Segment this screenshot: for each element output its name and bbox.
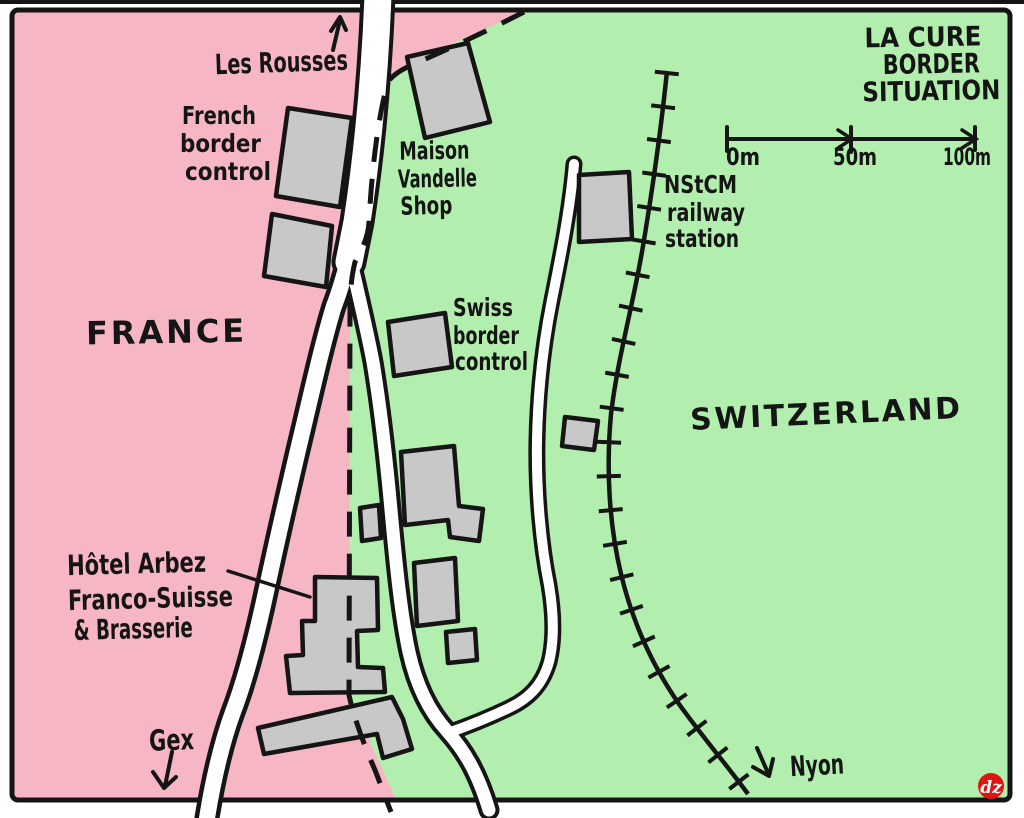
railway-tick xyxy=(599,509,623,511)
nstcm-line-2: railway xyxy=(667,198,745,227)
building-cluster-medium xyxy=(414,558,458,626)
swiss-border-line-1: Swiss xyxy=(453,293,513,322)
french-border-line-1: French xyxy=(182,101,256,130)
label-nyon: Nyon xyxy=(789,748,845,784)
map-canvas: 0m 50m 100m LA CURE BORDER SITUATION Les… xyxy=(0,0,1024,818)
swiss-border-line-2: border xyxy=(453,321,519,350)
nstcm-line-1: NStCM xyxy=(664,170,737,199)
building-railway-station xyxy=(579,172,632,242)
building-swiss-control xyxy=(388,313,452,376)
map-title: LA CURE BORDER SITUATION xyxy=(861,21,1000,108)
scale-label-50m: 50m xyxy=(833,143,877,171)
maison-line-1: Maison xyxy=(399,135,469,165)
building-french-control-2 xyxy=(264,214,332,287)
railway-tick xyxy=(651,105,675,108)
nstcm-line-3: station xyxy=(665,224,739,253)
french-border-line-3: control xyxy=(185,157,271,186)
la-cure-border-map: 0m 50m 100m LA CURE BORDER SITUATION Les… xyxy=(0,0,1024,818)
railway-tick xyxy=(597,442,621,443)
hotel-line-1: Hôtel Arbez xyxy=(67,546,207,583)
building-french-control-1 xyxy=(276,108,352,207)
label-nstcm-station: NStCM railway station xyxy=(664,170,745,253)
artist-logo: dz xyxy=(978,773,1004,799)
maison-line-3: Shop xyxy=(400,191,452,221)
scale-label-0m: 0m xyxy=(726,143,760,171)
logo-text: dz xyxy=(980,778,1002,798)
hotel-line-3: & Brasserie xyxy=(73,611,193,647)
maison-line-2: Vandelle xyxy=(398,163,477,193)
label-les-rousses: Les Rousses xyxy=(214,44,348,82)
building-small-east xyxy=(562,417,598,450)
scale-label-100m: 100m xyxy=(943,143,991,171)
french-border-line-2: border xyxy=(180,129,262,158)
railway-tick xyxy=(655,72,679,74)
title-line-3: SITUATION xyxy=(862,75,1001,108)
label-gex: Gex xyxy=(148,722,194,758)
building-small-west xyxy=(360,505,381,541)
railway-tick xyxy=(597,476,621,477)
swiss-border-line-3: control xyxy=(455,347,528,376)
building-cluster-small xyxy=(446,629,477,663)
